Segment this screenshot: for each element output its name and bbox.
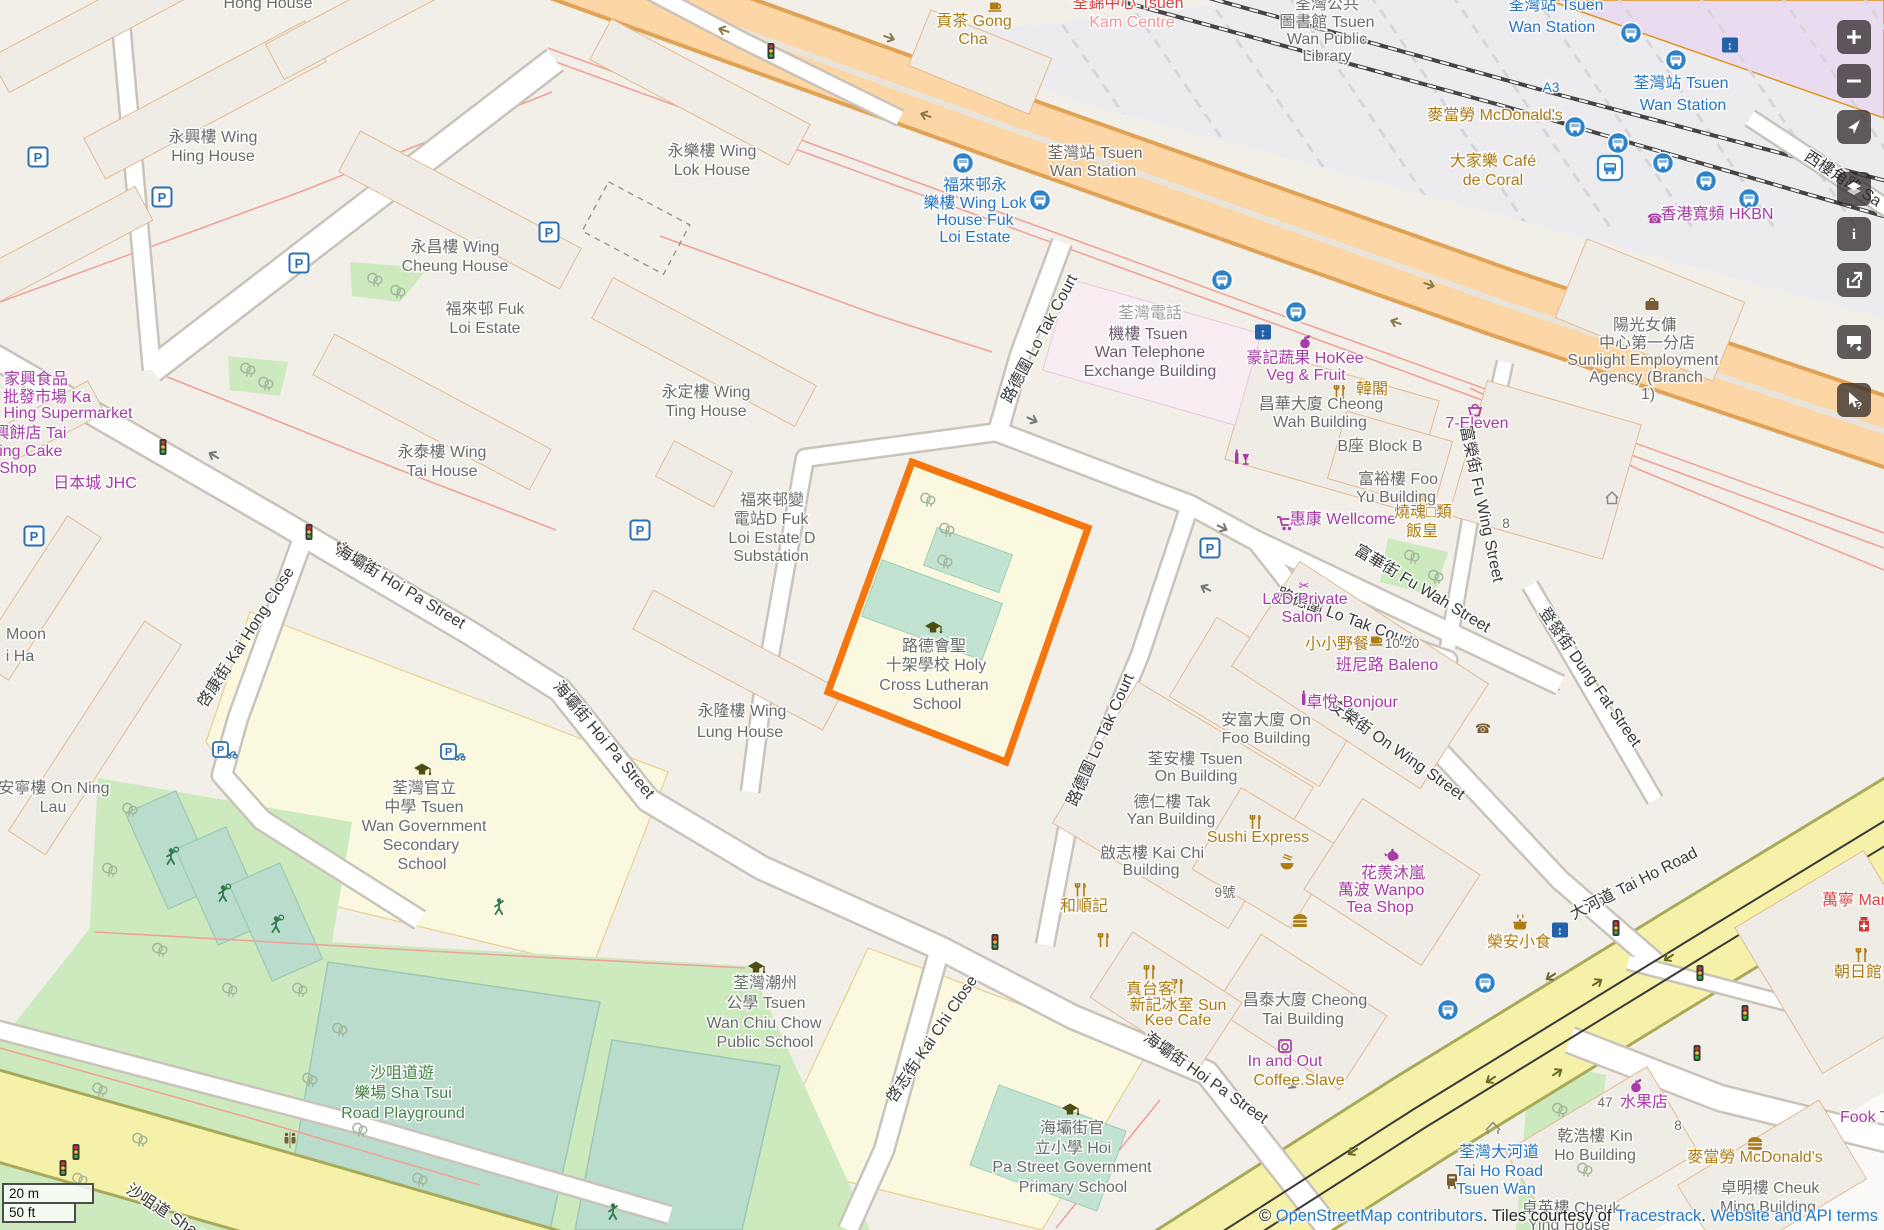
map-label: 中心第一分店 xyxy=(1599,334,1695,352)
map-label: Tai Ho Road xyxy=(1455,1163,1543,1180)
svg-text:P: P xyxy=(158,190,167,205)
map-label: Cross Lutheran xyxy=(879,677,988,694)
parking-icon: P xyxy=(1201,539,1220,558)
map-label: 海壩街官 xyxy=(1040,1119,1104,1137)
map-label: 10-20 xyxy=(1385,636,1420,651)
add-note-button[interactable] xyxy=(1837,325,1871,359)
map-label: On Building xyxy=(1155,768,1238,785)
svg-text:P: P xyxy=(295,256,304,271)
map-label: 批發市場 Ka xyxy=(3,388,91,406)
bus-stop-icon xyxy=(1030,190,1051,211)
map-label: Wan Government xyxy=(362,818,487,835)
locate-icon xyxy=(1844,117,1864,137)
map-label: 福來邨永 xyxy=(943,176,1007,194)
map-label: 惠康 Wellcome xyxy=(1290,510,1396,528)
map-label: Salon xyxy=(1282,609,1323,626)
attribution-text: . Tiles courtesy of xyxy=(1483,1207,1616,1225)
map-label: Agency (Branch xyxy=(1589,369,1703,386)
map-label: 路德會聖 xyxy=(902,637,966,655)
map-label: Wan Telephone xyxy=(1095,344,1205,361)
map-label: 荃灣大河道 xyxy=(1459,1143,1539,1161)
map-label: Hing House xyxy=(171,148,255,165)
map-label: Secondary xyxy=(383,837,460,854)
elevator-icon: ↕ xyxy=(1722,38,1738,53)
map-label: 安寧樓 On Ning xyxy=(0,779,110,797)
map-label: Yu Building xyxy=(1356,489,1436,506)
bus-stop-icon xyxy=(1653,153,1674,174)
map-label: Substation xyxy=(733,548,809,565)
map-label: 香港寬頻 HKBN xyxy=(1661,205,1774,223)
map-label: Exchange Building xyxy=(1084,363,1217,380)
map-label: Kam Centre xyxy=(1089,14,1174,31)
map-canvas[interactable]: PPPPPPPPP↕↕↕☎☎✂Hong House永興樓 WingHing Ho… xyxy=(0,0,1884,1230)
map-label: 機樓 Tsuen xyxy=(1108,325,1187,343)
scale-imperial: 50 ft xyxy=(2,1202,76,1223)
map-label: 9號 xyxy=(1214,885,1236,900)
svg-text:P: P xyxy=(1206,541,1215,556)
map-label: 富裕樓 Foo xyxy=(1358,470,1438,488)
map-label: 真台客 xyxy=(1126,980,1174,998)
map-label: 永興樓 Wing xyxy=(169,128,258,146)
map-label: 大家樂 Café xyxy=(1450,152,1536,170)
attribution-link[interactable]: Website and API terms xyxy=(1710,1207,1878,1225)
svg-text:?: ? xyxy=(1856,401,1862,410)
map-label: 樂場 Sha Tsui xyxy=(354,1084,452,1102)
attribution: © OpenStreetMap contributors. Tiles cour… xyxy=(1259,1207,1878,1226)
map-label: 卓明樓 Cheuk xyxy=(1721,1179,1821,1197)
map-label: 花羨沐嵐 xyxy=(1361,864,1425,882)
map-label: 德仁樓 Tak xyxy=(1133,793,1211,811)
svg-text:↕: ↕ xyxy=(1557,924,1563,938)
osm-map-view: PPPPPPPPP↕↕↕☎☎✂Hong House永興樓 WingHing Ho… xyxy=(0,0,1884,1230)
svg-text:P: P xyxy=(445,747,452,759)
map-label: Cheung House xyxy=(402,258,509,275)
map-label: School xyxy=(913,696,962,713)
map-label: 荃灣潮州 xyxy=(733,974,797,992)
elevator-icon: ↕ xyxy=(1255,325,1271,340)
map-label: 47 xyxy=(1597,1095,1612,1110)
map-label: 電站D Fuk xyxy=(734,510,810,528)
map-label: Ho Building xyxy=(1554,1147,1636,1164)
share-button[interactable] xyxy=(1837,263,1871,297)
map-label: Wan Station xyxy=(1509,19,1596,36)
map-label: 興餅店 Tai xyxy=(0,424,66,442)
scale-bar: 20 m 50 ft xyxy=(2,1183,94,1223)
map-label: 和順記 xyxy=(1060,897,1108,915)
map-label: Lung House xyxy=(697,724,783,741)
bus-stop-icon xyxy=(1475,973,1496,994)
bus-stop-icon xyxy=(1286,302,1307,323)
map-label: Cha xyxy=(958,31,987,48)
map-label: 萬寧 Mannings xyxy=(1822,891,1884,909)
bus-stop-icon xyxy=(1666,50,1687,71)
map-label: Wah Building xyxy=(1273,414,1367,431)
map-label: L&D Private xyxy=(1262,591,1347,608)
map-label: 8 xyxy=(1502,516,1510,531)
map-label: 朝日館 xyxy=(1834,963,1882,981)
traffic-light-icon xyxy=(1613,920,1620,936)
map-label: Primary School xyxy=(1019,1179,1127,1196)
map-label: 7-Eleven xyxy=(1445,415,1508,432)
parking-icon: P xyxy=(290,254,309,273)
map-label: 卓悅 Bonjour xyxy=(1306,693,1398,711)
telephone-icon: ☎ xyxy=(1475,721,1491,736)
bus-stop-icon xyxy=(1212,270,1233,291)
map-label: 乾浩樓 Kin xyxy=(1557,1127,1633,1145)
map-label: 十架學校 Holy xyxy=(886,656,986,674)
bus-station-icon xyxy=(1598,156,1622,180)
svg-text:☎: ☎ xyxy=(1475,721,1491,736)
map-label: Hong House xyxy=(224,0,313,12)
svg-text:P: P xyxy=(545,225,554,240)
map-label: 荃灣電話 xyxy=(1118,304,1182,322)
map-label: Ting House xyxy=(665,403,746,420)
query-features-icon: ? xyxy=(1844,390,1864,410)
map-label: 中學 Tsuen xyxy=(384,798,463,816)
traffic-light-icon xyxy=(73,1144,80,1160)
traffic-light-icon xyxy=(1694,1045,1701,1061)
map-label: 韓閣 xyxy=(1356,380,1388,398)
traffic-light-icon xyxy=(306,524,313,540)
map-label: School xyxy=(398,856,447,873)
map-label: Tai Building xyxy=(1262,1011,1344,1028)
map-label: Lau xyxy=(40,799,67,816)
traffic-light-icon xyxy=(160,439,167,455)
map-label: Yan Building xyxy=(1127,811,1216,828)
share-icon xyxy=(1844,270,1864,290)
elevator-icon: ↕ xyxy=(1552,923,1568,938)
zoom-in-button[interactable] xyxy=(1837,20,1871,54)
map-label: 荃灣公共 xyxy=(1295,0,1359,13)
map-label: House Fuk xyxy=(936,212,1014,229)
map-label: 飯皇 xyxy=(1406,522,1438,540)
bus-stop-icon xyxy=(1621,23,1642,44)
bus-stop-icon xyxy=(1608,133,1629,154)
map-label: 荃灣站 Tsuen xyxy=(1508,0,1603,14)
map-label: Sunlight Employment xyxy=(1567,352,1719,369)
map-label: 家興食品 xyxy=(4,370,68,388)
parking-icon: P xyxy=(25,527,44,546)
traffic-light-icon xyxy=(1742,1005,1749,1021)
parking-icon: P xyxy=(540,223,559,242)
map-label: Moon xyxy=(6,626,46,643)
traffic-light-icon xyxy=(60,1160,67,1176)
map-label: 永昌樓 Wing xyxy=(411,238,500,256)
map-label: 圖書館 Tsuen xyxy=(1279,13,1374,31)
map-label: 小小野餐 xyxy=(1305,635,1369,653)
map-label: Coffee.Slave xyxy=(1253,1072,1344,1089)
map-label: A3 xyxy=(1542,79,1559,95)
map-label: 樂樓 Wing Lok xyxy=(923,194,1027,212)
svg-text:P: P xyxy=(34,150,43,165)
map-label: Foo Building xyxy=(1222,730,1311,747)
map-label: 荃灣官立 xyxy=(392,779,456,797)
parking-icon: P xyxy=(631,521,650,540)
add-note-icon xyxy=(1844,332,1864,352)
map-label: Fook Ta xyxy=(1840,1109,1884,1126)
bus-stop-icon xyxy=(1565,117,1586,138)
map-label: Veg & Fruit xyxy=(1266,367,1346,384)
map-label: 永泰樓 Wing xyxy=(398,443,487,461)
map-label: 立小學 Hoi xyxy=(1035,1139,1111,1157)
map-label: 班尼路 Baleno xyxy=(1336,656,1438,674)
map-label: Wan Chiu Chow xyxy=(706,1015,821,1032)
map-label: B座 Block B xyxy=(1337,437,1422,455)
map-label: Kee Cafe xyxy=(1145,1012,1212,1029)
traffic-light-icon xyxy=(1697,965,1704,981)
map-label: 永定樓 Wing xyxy=(662,383,751,401)
traffic-light-icon xyxy=(768,43,775,59)
map-label: Wan Station xyxy=(1050,163,1137,180)
svg-text:P: P xyxy=(636,523,645,538)
map-label: 安富大廈 On xyxy=(1221,711,1311,729)
map-label: In and Out xyxy=(1248,1053,1323,1070)
map-label: 荃錦中心 Tsuen xyxy=(1072,0,1183,12)
map-label: 永隆樓 Wing xyxy=(698,702,787,720)
map-label: 1) xyxy=(1641,386,1655,403)
map-label: 荃安樓 Tsuen xyxy=(1147,750,1242,768)
map-label: 永樂樓 Wing xyxy=(668,142,757,160)
svg-text:i: i xyxy=(1852,227,1856,243)
map-label: Tsuen Wan xyxy=(1456,1181,1535,1198)
map-label: 8 xyxy=(1674,1118,1682,1133)
map-label: 福來邨變 xyxy=(740,491,804,509)
traffic-light-icon xyxy=(992,934,999,950)
map-label: 陽光女傭 xyxy=(1613,315,1677,334)
map-label: Shop xyxy=(0,460,37,477)
map-label: 荃灣站 Tsuen xyxy=(1047,144,1142,162)
bus-stop-icon xyxy=(1438,1000,1459,1021)
zoom-out-button[interactable] xyxy=(1837,64,1871,98)
map-label: 豪記蔬果 HoKee xyxy=(1246,348,1363,367)
query-features-button[interactable]: ? xyxy=(1837,383,1871,417)
map-label: Tai House xyxy=(406,463,477,480)
map-label: Lok House xyxy=(674,162,751,179)
map-label: 啟志樓 Kai Chi xyxy=(1100,844,1204,862)
map-label: 沙咀道遊 xyxy=(370,1064,434,1082)
map-label: Loi Estate D xyxy=(728,530,815,547)
map-label: 麥當勞 McDonald's xyxy=(1427,106,1563,124)
zoom-out-icon xyxy=(1844,71,1864,91)
scale-metric: 20 m xyxy=(2,1183,94,1204)
map-label: 水果店 xyxy=(1620,1093,1668,1111)
attribution-link[interactable]: OpenStreetMap contributors xyxy=(1276,1207,1483,1225)
map-label: Tea Shop xyxy=(1346,899,1414,916)
map-label: Loi Estate xyxy=(939,229,1010,246)
map-label: 福來邨 Fuk xyxy=(445,300,525,318)
map-key-icon: i xyxy=(1844,224,1864,244)
map-label: Building xyxy=(1123,862,1180,879)
attribution-link[interactable]: Tracestrack xyxy=(1616,1207,1702,1225)
pharmacy-icon xyxy=(1859,917,1869,932)
burger-icon xyxy=(1293,914,1307,927)
layers-button[interactable] xyxy=(1837,172,1871,206)
map-label: Wan Public xyxy=(1287,31,1367,48)
map-label: 貢茶 Gong xyxy=(936,12,1012,30)
parking-icon: P xyxy=(153,188,172,207)
map-label: de Coral xyxy=(1463,172,1523,189)
map-label: Wan Station xyxy=(1640,97,1727,114)
map-key-button[interactable]: i xyxy=(1837,217,1871,251)
map-label: 荃灣站 Tsuen xyxy=(1633,74,1728,92)
map-label: 日本城 JHC xyxy=(53,474,137,492)
locate-button[interactable] xyxy=(1837,110,1871,144)
parking-icon: P xyxy=(29,148,48,167)
map-label: Road Playground xyxy=(341,1105,465,1122)
map-label: Loi Estate xyxy=(449,320,520,337)
bus-stop-icon xyxy=(953,153,974,174)
map-label: Public School xyxy=(717,1034,814,1051)
bus-stop-icon xyxy=(1696,171,1717,192)
svg-text:P: P xyxy=(217,745,224,757)
map-label: 麥當勞 McDonald's xyxy=(1687,1148,1823,1166)
map-label: Library xyxy=(1303,48,1352,65)
map-label: 公學 Tsuen xyxy=(726,994,805,1012)
map-label: 榮安小食 xyxy=(1487,933,1551,951)
zoom-in-icon xyxy=(1844,27,1864,47)
layers-icon xyxy=(1844,179,1864,199)
svg-text:↕: ↕ xyxy=(1727,39,1733,53)
svg-text:P: P xyxy=(30,529,39,544)
map-label: 萬波 Wanpo xyxy=(1338,881,1425,899)
svg-text:↕: ↕ xyxy=(1260,326,1266,340)
map-label: Pa Street Government xyxy=(992,1159,1152,1176)
map-label: Hing Supermarket xyxy=(4,405,134,422)
map-label: Sushi Express xyxy=(1207,829,1309,846)
attribution-text: © xyxy=(1259,1207,1276,1225)
map-label: 昌泰大廈 Cheong xyxy=(1243,991,1368,1009)
map-label: i Ha xyxy=(6,648,35,665)
map-label: Hing Cake xyxy=(0,443,62,460)
